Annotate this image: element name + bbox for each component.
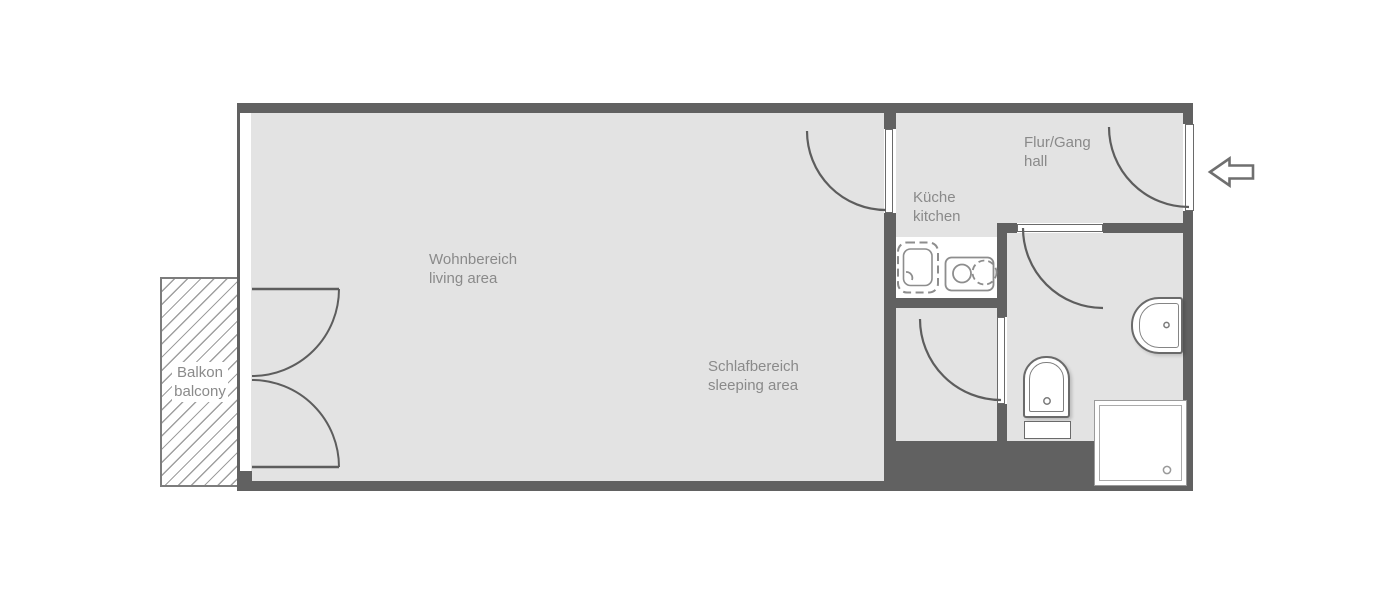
kitchen-label: Küche kitchen <box>913 188 961 226</box>
kitchen-label-de: Küche <box>913 188 961 207</box>
hall-label: Flur/Gang hall <box>1024 133 1091 171</box>
kitchen-counter <box>896 237 997 298</box>
entrance-door-leaf <box>1185 124 1194 211</box>
balcony-label: Balkon balcony <box>172 362 228 402</box>
living-area-label-en: living area <box>429 269 517 288</box>
storage-room-floor <box>896 308 997 441</box>
hall-label-de: Flur/Gang <box>1024 133 1091 152</box>
washbasin-inner <box>1139 303 1179 348</box>
living-sleeping-floor <box>250 113 884 481</box>
shower-tray-inner <box>1099 405 1182 481</box>
living-area-label-de: Wohnbereich <box>429 250 517 269</box>
wall-living-kitchen-lower <box>884 213 896 441</box>
wall-storage-bath-lower <box>997 404 1007 441</box>
sleeping-area-label: Schlafbereich sleeping area <box>708 357 799 395</box>
wall-slab-bottom <box>884 441 1094 491</box>
storage-door-leaf <box>997 317 1005 404</box>
wall-storage-bath-upper <box>997 223 1007 317</box>
balcony-label-en: balcony <box>174 382 226 401</box>
living-area-label: Wohnbereich living area <box>429 250 517 288</box>
toilet-tank <box>1024 421 1071 439</box>
wall-right-upper <box>1183 103 1193 124</box>
wall-kitchen-storage <box>884 298 1007 308</box>
wall-living-kitchen-upper <box>884 113 896 129</box>
window-left-wall <box>240 113 251 471</box>
wall-top <box>237 103 1192 113</box>
toilet-bowl-inner <box>1029 362 1064 412</box>
sleeping-area-label-de: Schlafbereich <box>708 357 799 376</box>
entrance-arrow-icon <box>1210 159 1253 186</box>
wall-hall-bath-left <box>997 223 1017 233</box>
kitchen-label-en: kitchen <box>913 207 961 226</box>
wall-hall-bath-right <box>1103 223 1183 233</box>
balcony-area: Balkon balcony <box>160 277 240 487</box>
balcony-label-de: Balkon <box>174 363 226 382</box>
living-room-door-leaf <box>885 129 893 213</box>
sleeping-area-label-en: sleeping area <box>708 376 799 395</box>
shower-tray <box>1094 400 1187 486</box>
floor-plan: Balkon balcony <box>0 0 1400 600</box>
bathroom-door-leaf <box>1017 224 1103 232</box>
wall-left-stub <box>237 471 252 491</box>
hall-label-en: hall <box>1024 152 1091 171</box>
